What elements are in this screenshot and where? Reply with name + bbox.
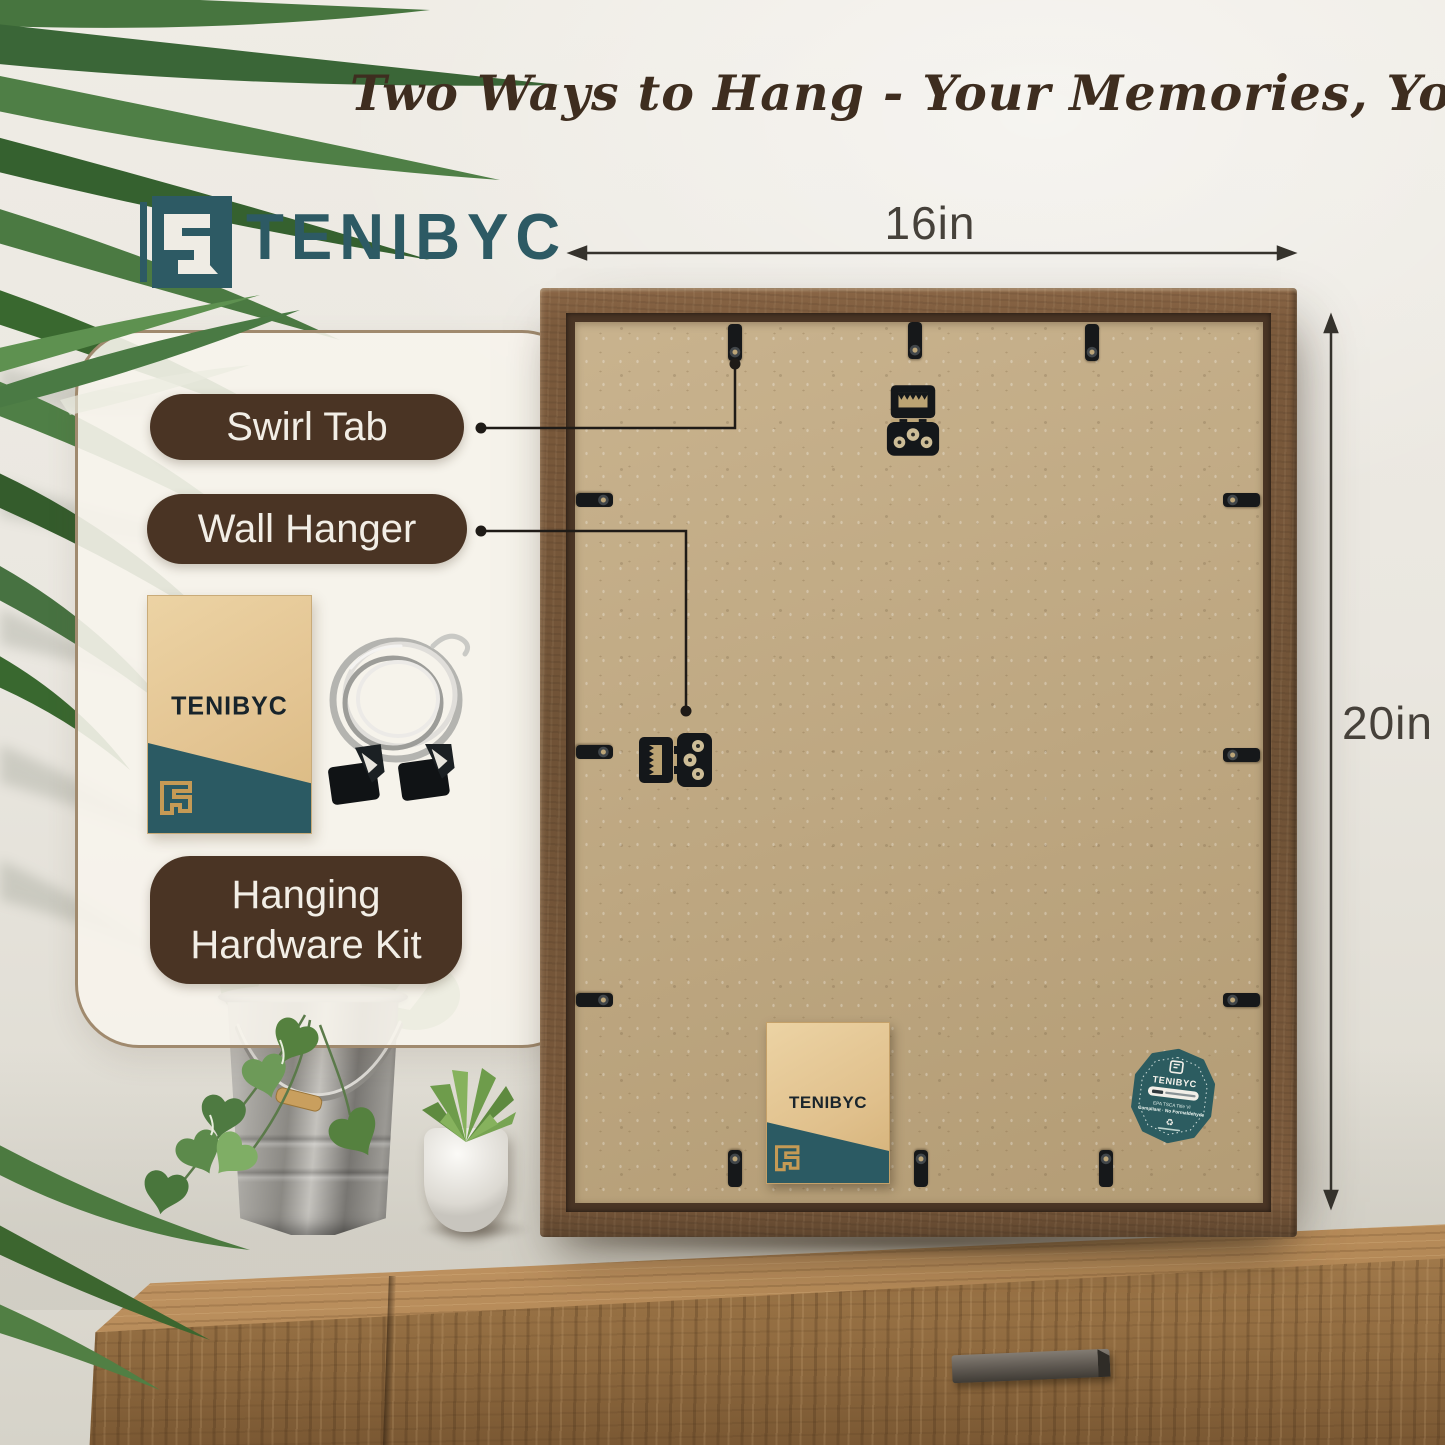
- product-infographic: Two Ways to Hang - Your Memories, Your S…: [0, 0, 1445, 1445]
- annotation-lines: [0, 0, 1445, 1445]
- wall-hanger-callout-line: [481, 531, 686, 712]
- swirl-tab-callout-line: [481, 366, 735, 428]
